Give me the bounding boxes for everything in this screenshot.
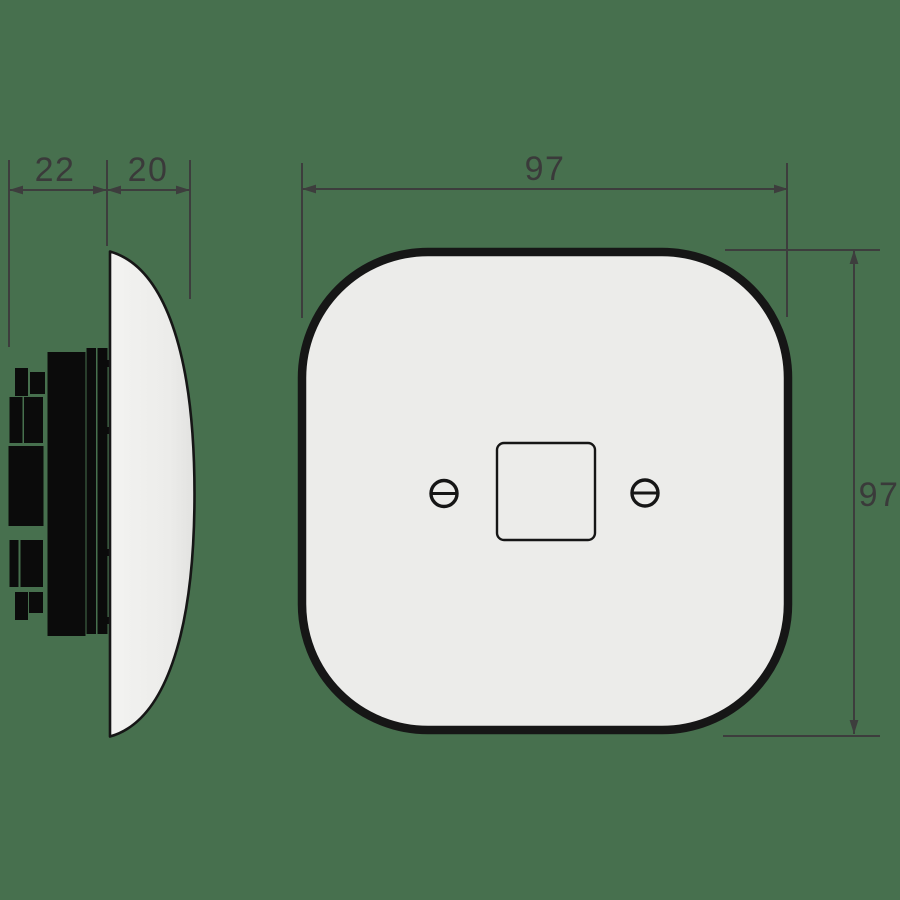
terminal-block [21,540,44,587]
mechanism-plate-outer [87,348,97,634]
terminal-block [15,592,28,620]
arrowhead [176,186,190,195]
terminal-block [29,592,43,613]
arrowhead [850,250,859,264]
terminal-block [9,446,44,526]
arrowhead [302,185,316,194]
terminal-block [10,397,23,443]
mechanism-body [48,352,86,636]
dim-label-cover-depth: 20 [128,151,169,189]
dim-label-plate-width: 97 [525,150,566,188]
arrowhead [850,720,859,734]
right-screw-icon [631,480,659,506]
front-view [302,252,788,730]
terminal-block [24,397,43,443]
left-screw-icon [430,481,458,507]
arrowhead [9,186,23,195]
technical-drawing-canvas: 22 20 97 97 [0,0,900,900]
side-profile-view [9,252,195,737]
dim-label-plate-height: 97 [859,476,900,514]
terminal-block [10,540,19,587]
arrowhead [107,186,121,195]
mechanism-plate-inner [98,348,108,634]
terminal-block [30,372,45,394]
switch-mechanism-silhouette [9,348,115,636]
arrowhead [93,186,107,195]
terminal-block [15,368,28,396]
switch-dimension-drawing: 22 20 97 97 [0,0,900,900]
switch-plate [302,252,788,730]
porcelain-cover-profile [110,252,195,737]
arrowhead [774,185,788,194]
dim-label-mechanism-depth: 22 [35,151,76,189]
